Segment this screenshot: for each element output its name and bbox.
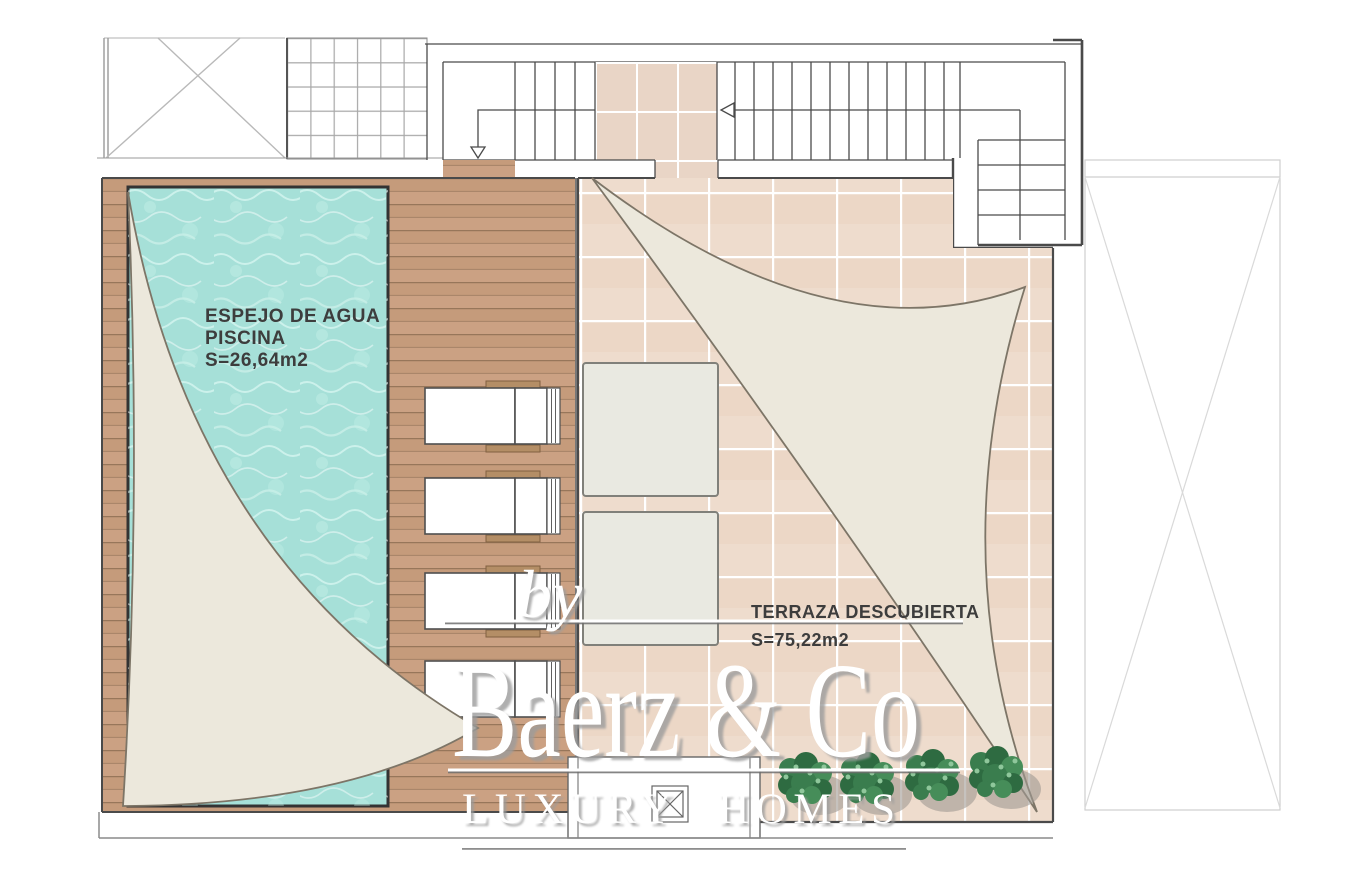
watermark-rule-bottom bbox=[462, 846, 906, 848]
adjacent-roof-volume bbox=[1082, 40, 1280, 810]
stair-treads-right bbox=[735, 62, 944, 160]
watermark-rule-bottom-shadow bbox=[462, 848, 906, 850]
daybed-cushion bbox=[583, 363, 718, 496]
watermark-by: by bbox=[518, 556, 583, 632]
sun-lounger bbox=[425, 381, 560, 452]
daybed-cushion bbox=[583, 512, 718, 645]
sun-lounger bbox=[425, 471, 560, 542]
stair-walk-line bbox=[471, 103, 1020, 158]
stair-treads-left bbox=[515, 62, 575, 160]
terrace-label-title: TERRAZA DESCUBIERTA bbox=[751, 602, 980, 622]
landing-corridor bbox=[655, 160, 718, 179]
return-stair bbox=[953, 40, 1082, 248]
skylight-panel bbox=[104, 38, 285, 158]
watermark-tagline: LUXURY HOMES bbox=[462, 786, 906, 833]
watermark-brand: Baerz & Co bbox=[452, 636, 920, 786]
watermark-rule-mid bbox=[448, 769, 960, 772]
watermark-rule-mid-shadow bbox=[448, 772, 960, 774]
floor-plan-canvas: ESPEJO DE AGUA PISCINA S=26,64m2 TERRAZA… bbox=[0, 0, 1368, 889]
pool-label-line2: PISCINA bbox=[205, 328, 286, 349]
grated-roof-panel bbox=[287, 38, 427, 159]
pool-area-value: S=26,64m2 bbox=[205, 350, 308, 371]
stair-landing bbox=[595, 62, 717, 160]
pool-label-line1: ESPEJO DE AGUA bbox=[205, 306, 380, 327]
floor-plan-svg: ESPEJO DE AGUA PISCINA S=26,64m2 TERRAZA… bbox=[0, 0, 1368, 889]
